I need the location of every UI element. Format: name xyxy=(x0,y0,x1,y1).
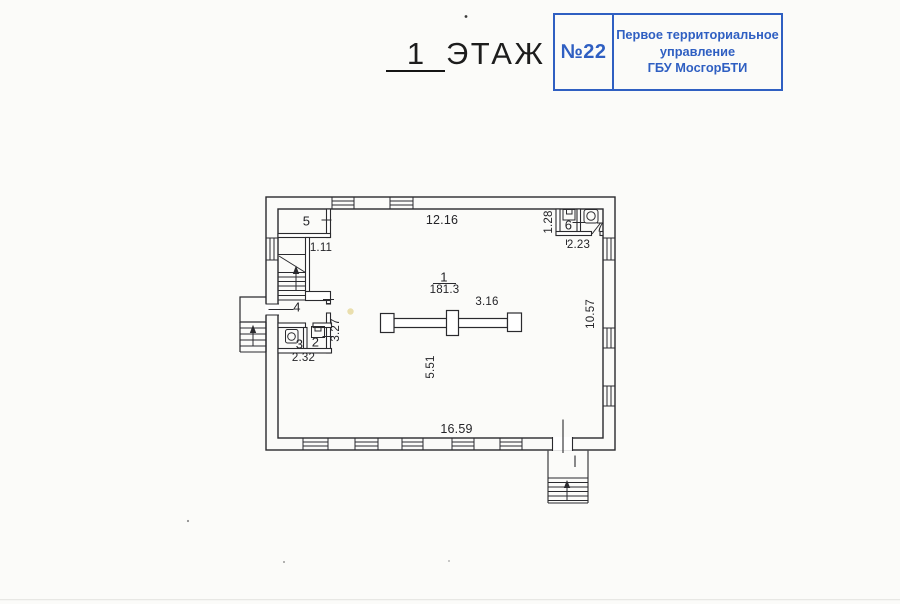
entrance-up-arrow-icon xyxy=(564,480,570,488)
room-label-main: 1 xyxy=(440,270,447,285)
dimension-wc-row: 2.32 xyxy=(292,352,315,364)
dimension-wc-depth: 1.28 xyxy=(543,210,555,233)
column-beam xyxy=(381,311,522,336)
entrance-bottom-right xyxy=(548,420,588,504)
floor-plan-drawing xyxy=(0,0,900,604)
dimension-wc-width: 2.23 xyxy=(567,239,590,251)
dimension-bottom-wall: 16.59 xyxy=(440,422,472,436)
porch-staircase xyxy=(240,297,266,352)
dimension-top-wall: 12.16 xyxy=(426,213,458,227)
interior-staircase xyxy=(279,255,306,301)
room-label-6: 6 xyxy=(565,217,572,232)
dimension-column-spacing: 3.16 xyxy=(475,296,498,308)
scan-artifacts xyxy=(0,15,900,600)
dimension-hall-span: 5.51 xyxy=(425,355,437,378)
room-label-4: 4 xyxy=(293,300,300,315)
stairs-up-arrow-icon xyxy=(293,266,299,275)
dimension-stair-lobby: 1.11 xyxy=(310,242,332,254)
room-label-3: 3 xyxy=(296,337,303,352)
room-label-7: 7 xyxy=(596,220,603,235)
room-label-2: 2 xyxy=(312,334,319,349)
scanned-floor-plan-page: 1 ЭТАЖ №22 Первое территориальное управл… xyxy=(0,0,900,604)
door-opening-left xyxy=(265,304,294,315)
dimension-right-wall: 10.57 xyxy=(585,299,597,329)
porch-up-arrow-icon xyxy=(250,325,256,333)
room-label-5: 5 xyxy=(303,214,310,229)
room-area-main: 181.3 xyxy=(430,284,460,296)
dimension-hall-depth: 3.27 xyxy=(330,318,342,341)
